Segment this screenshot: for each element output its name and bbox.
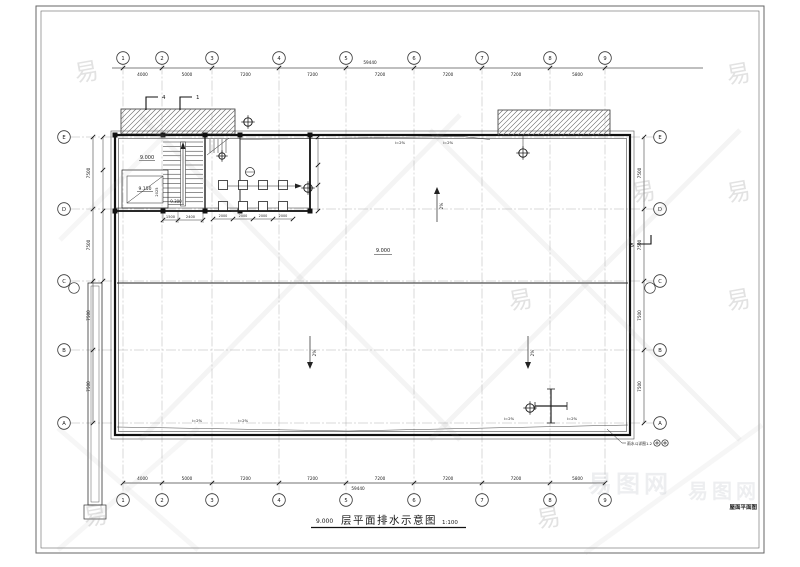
hatch-line	[181, 109, 206, 134]
axis-row-right-label: E	[658, 135, 661, 141]
dim-text-left: 7500	[86, 167, 91, 178]
hatch-line	[231, 130, 235, 134]
axis-col-top-label: 7	[480, 56, 483, 62]
hatch-line	[498, 110, 503, 115]
gutter-slope-label: i=2%	[238, 418, 249, 423]
dim-text-left: 7500	[86, 239, 91, 250]
column-hollow	[239, 202, 248, 211]
hatch-line	[176, 109, 201, 134]
elevation-label: 9.300	[170, 199, 182, 204]
column-filled	[308, 133, 313, 138]
sheet-border-inner	[41, 11, 759, 548]
dim-total-top: 59440	[363, 60, 377, 65]
axis-col-bottom-label: 6	[412, 498, 415, 504]
elevation-label: 9.150	[139, 186, 152, 192]
column-hollow	[259, 181, 268, 190]
axis-col-top-label: 1	[121, 56, 124, 62]
drain-ref-icon	[654, 440, 660, 446]
vent-pipe-icon	[535, 389, 567, 423]
roof-drain-icon	[516, 146, 529, 159]
dim-text-bottom: 7200	[375, 476, 386, 481]
gutter-slope-label: i=2%	[395, 140, 406, 145]
dim-text-top: 7200	[443, 72, 454, 77]
dim-text-right: 7500	[637, 239, 642, 250]
dim-text-top: 7200	[375, 72, 386, 77]
section-label: 5	[631, 243, 635, 249]
column-filled	[113, 209, 118, 214]
hatch-line	[196, 109, 221, 134]
dim-text-bottom: 7200	[443, 476, 454, 481]
slope-arrow-head	[525, 362, 531, 369]
section-label: 4	[162, 95, 166, 101]
grid-dim: 2000	[219, 214, 228, 218]
watermark-logo: 易图网	[688, 479, 760, 503]
gutter-slope-label: i=2%	[504, 416, 515, 421]
title-block: 9.000 层平面排水示意图 1:100	[311, 514, 466, 528]
axis-row-left-label: C	[62, 279, 66, 285]
axis-col-bottom-label: 1	[121, 498, 124, 504]
axis-row-left-label: A	[62, 421, 66, 427]
watermark-char: 易	[72, 56, 100, 88]
section-mark	[180, 97, 192, 110]
axis-col-bottom-label: 7	[480, 498, 483, 504]
drain-ref-icon	[664, 442, 666, 444]
hatch-line	[498, 110, 518, 130]
column-hollow	[279, 181, 288, 190]
dim-text-left: 7500	[86, 310, 91, 321]
drains	[216, 115, 536, 414]
slope-arrow-head	[307, 362, 313, 369]
watermark-char: 易	[506, 284, 534, 316]
axis-col-top-label: 6	[412, 56, 415, 62]
axis-row-left-label: E	[62, 135, 65, 141]
watermark-char: 易	[724, 176, 752, 208]
dim-text-top: 5800	[572, 72, 583, 77]
dim-text-right: 7500	[637, 381, 642, 392]
section-label: 1	[196, 95, 200, 101]
dim-text-top: 5000	[182, 72, 193, 77]
dim-text-top: 7200	[240, 72, 251, 77]
hatch-line	[211, 110, 235, 134]
drain-ref-icon	[662, 440, 668, 446]
hatch-line	[121, 109, 126, 114]
dim-text-bottom: 7200	[240, 476, 251, 481]
hatch-line	[161, 109, 186, 134]
watermark-char: 易	[81, 500, 109, 532]
axis-row-sub-bubble	[69, 283, 80, 294]
corner-label: 屋面平面图	[729, 503, 757, 511]
hatch-line	[593, 118, 610, 135]
drain-ref-icon	[656, 442, 658, 444]
axis-col-bottom-label: 5	[344, 498, 347, 504]
dim-text-top: 4000	[137, 72, 148, 77]
roof-drain-icon	[241, 115, 254, 128]
watermark-logo: 易图网	[588, 470, 672, 498]
axis-row-sub-bubble	[645, 283, 656, 294]
penthouse-wall	[115, 135, 310, 211]
hatch-line	[201, 109, 226, 134]
watermark-char: 易	[724, 58, 752, 90]
hatch-line	[186, 109, 211, 134]
hatch-line	[171, 109, 196, 134]
hatch-line	[121, 109, 131, 119]
hatch-line	[226, 125, 235, 134]
gutter-slope-label: i=2%	[192, 418, 203, 423]
stair-width-dim: 1500	[166, 215, 176, 219]
title-elevation: 9.000	[316, 518, 333, 525]
hatch-line	[121, 109, 141, 129]
axis-col-bottom-label: 9	[603, 498, 606, 504]
dim-total-bottom: 59440	[351, 486, 365, 491]
column-filled	[308, 209, 313, 214]
column-hollow	[259, 202, 268, 211]
hatch-line	[206, 109, 231, 134]
cad-sheet: 112233445566778899EEDDCCBBAA400050007200…	[0, 0, 800, 567]
dim-text-bottom: 7200	[511, 476, 522, 481]
stair-depth-dim: 2400	[186, 215, 196, 219]
column-hollow	[219, 181, 228, 190]
column-filled	[203, 133, 208, 138]
grid-dim: 2000	[259, 214, 268, 218]
hatch-line	[588, 113, 610, 135]
dim-text-bottom: 7200	[307, 476, 318, 481]
columns	[113, 133, 313, 223]
slope-arrow-head	[434, 187, 440, 194]
axis-col-top-label: 2	[160, 56, 163, 62]
raised-block-left	[121, 109, 235, 134]
roof-drain-icon	[301, 181, 314, 194]
section-mark	[146, 97, 158, 110]
left-wing-strip-inner	[91, 286, 99, 502]
axis-col-top-label: 3	[210, 56, 213, 62]
dim-text-bottom: 5800	[572, 476, 583, 481]
watermark-char: 易	[629, 176, 657, 208]
column-filled	[238, 133, 243, 138]
dim-text-left: 7500	[86, 381, 91, 392]
stair-rise-dim: 2025	[155, 187, 159, 196]
hatch-line	[498, 110, 508, 120]
axis-grid: 112233445566778899EEDDCCBBAA400050007200…	[58, 52, 703, 507]
dim-text-right: 7500	[637, 167, 642, 178]
gutter-slope-label: i=2%	[567, 416, 578, 421]
column-hollow	[239, 181, 248, 190]
watermark-char: 易	[724, 284, 752, 316]
slope-label: 2%	[439, 203, 444, 210]
watermark-char: 易	[534, 502, 562, 534]
axis-row-right-label: A	[658, 421, 662, 427]
slope-label: 2%	[530, 350, 535, 357]
hatch-line	[598, 123, 610, 135]
column-filled	[203, 209, 208, 214]
dim-text-right: 7500	[637, 310, 642, 321]
axis-col-top-label: 8	[548, 56, 551, 62]
axis-col-bottom-label: 2	[160, 498, 163, 504]
dim-text-top: 7200	[307, 72, 318, 77]
axis-row-left-label: B	[62, 348, 66, 354]
axis-row-left-label: D	[62, 207, 66, 213]
elevation-label: 9.000	[376, 248, 390, 254]
axis-row-right-label: B	[658, 348, 662, 354]
axis-row-right-label: C	[658, 279, 662, 285]
slope-label: 2%	[312, 350, 317, 357]
column-hollow	[279, 202, 288, 211]
drawing-title: 层平面排水示意图	[341, 514, 437, 527]
title-scale: 1:100	[442, 520, 458, 526]
drain-note: 雨水斗详图1.2	[627, 441, 653, 446]
hatch-line	[121, 109, 146, 134]
axis-col-top-label: 9	[603, 56, 606, 62]
column-filled	[113, 133, 118, 138]
axis-col-bottom-label: 3	[210, 498, 213, 504]
dim-text-top: 7200	[511, 72, 522, 77]
grid-dim: 2000	[279, 214, 288, 218]
axis-col-top-label: 5	[344, 56, 347, 62]
dim-text-bottom: 5000	[182, 476, 193, 481]
grid-arrow-head	[295, 184, 302, 189]
